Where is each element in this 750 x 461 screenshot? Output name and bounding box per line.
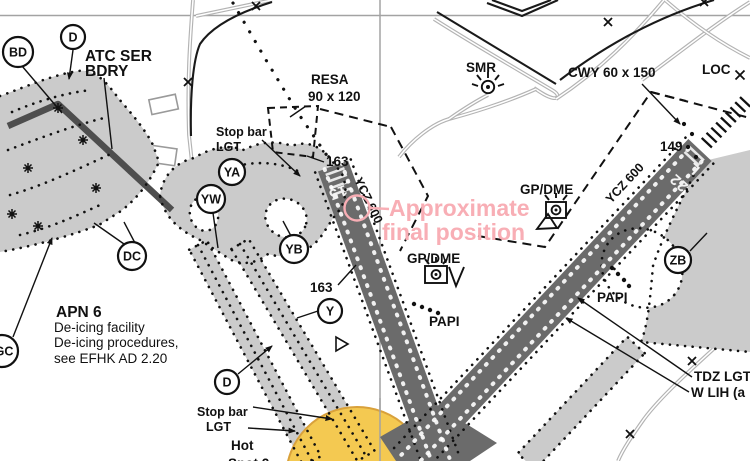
- label-deicing-1: De-icing facility: [54, 320, 145, 335]
- label-papi-west: PAPI: [429, 314, 460, 329]
- taxiway-circle-d-top: D: [61, 25, 85, 49]
- label-resa: RESA: [311, 72, 349, 87]
- label-tdz-wlih: W LIH (a: [691, 385, 745, 400]
- svg-text:GC: GC: [0, 345, 13, 359]
- taxiway-circle-yw: YW: [197, 185, 225, 213]
- label-elev-163-thr: 163: [326, 154, 349, 169]
- label-elev-149: 149: [660, 139, 683, 154]
- gp-dme-symbol-upper: [537, 193, 567, 229]
- taxiway-circle-ya: YA: [219, 159, 245, 185]
- label-stopbar-bottom: Stop bar: [197, 405, 248, 419]
- label-atc-bdry: BDRY: [85, 63, 129, 80]
- label-tdz-lgt: TDZ LGT: [694, 369, 750, 384]
- approach-light-dots: [233, 3, 698, 160]
- label-hotspot-2: Spot 2: [228, 456, 269, 461]
- taxiway-circle-yb: YB: [280, 235, 308, 263]
- label-elev-163-mid: 163: [310, 280, 333, 295]
- svg-text:D: D: [68, 31, 77, 45]
- annotation-text-line1: Approximate: [389, 195, 530, 221]
- svg-text:D: D: [222, 376, 231, 390]
- taxiway-circle-d-low: D: [215, 370, 239, 394]
- label-hotspot-1: Hot: [231, 438, 254, 453]
- label-deicing-3: see EFHK AD 2.20: [54, 351, 167, 366]
- label-deicing-2: De-icing procedures,: [54, 335, 179, 350]
- label-gp-dme-lower: GP/DME: [407, 251, 460, 266]
- chart-canvas: BD D YA YW YB DC GC Y D ZB 15 22 L YCZ 6…: [0, 0, 750, 461]
- label-papi-east: PAPI: [597, 290, 628, 305]
- svg-text:DC: DC: [123, 250, 141, 264]
- label-stopbar-bottom-lgt: LGT: [206, 420, 231, 434]
- label-cwy: CWY 60 x 150: [568, 65, 656, 80]
- label-smr: SMR: [466, 60, 496, 75]
- label-stopbar-top-lgt: LGT: [216, 140, 241, 154]
- svg-text:YW: YW: [201, 193, 221, 207]
- label-stopbar-top: Stop bar: [216, 125, 267, 139]
- apron-deicing-area: [0, 71, 159, 252]
- svg-text:YA: YA: [224, 166, 240, 180]
- annotation-text-line2: final position: [382, 219, 525, 245]
- taxiway-circle-bd: BD: [3, 37, 33, 67]
- label-loc: LOC: [702, 62, 731, 77]
- loc-x-mark: [736, 71, 745, 80]
- annotation-connector: [370, 208, 389, 209]
- localizer-antenna-array: [702, 97, 750, 147]
- taxiway-circle-dc: DC: [118, 242, 146, 270]
- smr-radar-symbol: [472, 72, 504, 93]
- taxiway-loop-pad: [160, 143, 345, 263]
- holding-triangle-symbol: [336, 337, 348, 351]
- taxiway-circle-gc: GC: [0, 335, 18, 367]
- taxiway-circle-y: Y: [318, 299, 342, 323]
- label-apn6: APN 6: [56, 304, 102, 321]
- taxiway-circle-zb: ZB: [665, 247, 691, 273]
- label-resa-size: 90 x 120: [308, 89, 361, 104]
- aerodrome-chart: BD D YA YW YB DC GC Y D ZB 15 22 L YCZ 6…: [0, 0, 750, 461]
- svg-text:YB: YB: [285, 243, 302, 257]
- svg-text:ZB: ZB: [670, 254, 687, 268]
- svg-text:Y: Y: [326, 305, 335, 319]
- svg-text:BD: BD: [9, 46, 27, 60]
